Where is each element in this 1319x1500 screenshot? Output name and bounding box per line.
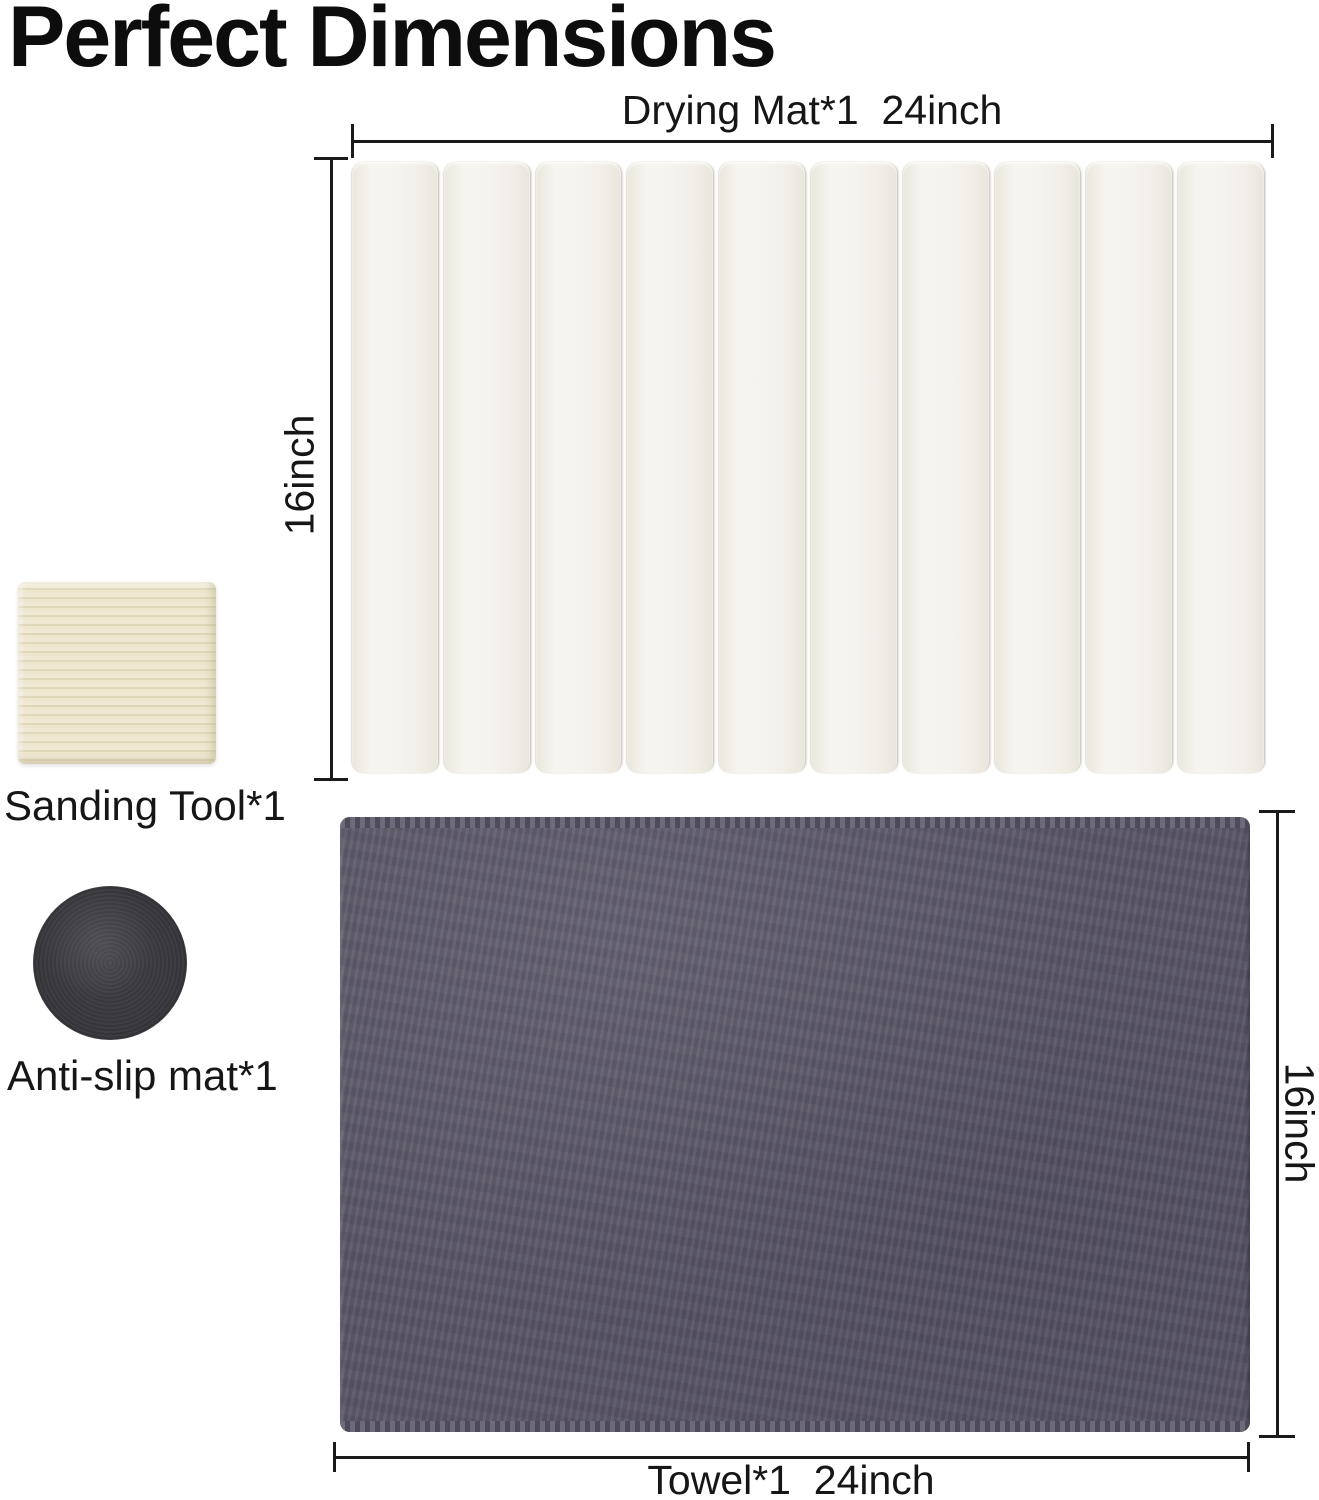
dimension-end-cap bbox=[314, 157, 348, 160]
drying-mat-slat bbox=[995, 162, 1081, 773]
drying-mat-slat bbox=[719, 162, 805, 773]
dimension-end-cap bbox=[1247, 1442, 1250, 1472]
drying-mat-image bbox=[352, 162, 1264, 773]
dimension-end-cap bbox=[314, 778, 348, 781]
dimension-end-cap bbox=[1271, 124, 1274, 158]
dimension-end-cap bbox=[1259, 810, 1295, 813]
towel-image bbox=[340, 817, 1250, 1432]
towel-width-label: Towel*1 24inch bbox=[647, 1458, 934, 1500]
drying-mat-slat bbox=[903, 162, 989, 773]
drying-mat-height-dimension-line bbox=[330, 157, 333, 781]
towel-height-dimension-line bbox=[1276, 810, 1279, 1438]
drying-mat-slat bbox=[811, 162, 897, 773]
dimension-end-cap bbox=[333, 1442, 336, 1472]
drying-mat-height-label: 16inch bbox=[277, 415, 322, 536]
dimension-end-cap bbox=[351, 124, 354, 158]
drying-mat-slat bbox=[1178, 162, 1264, 773]
sanding-tool-label: Sanding Tool*1 bbox=[4, 782, 286, 830]
anti-slip-mat-label: Anti-slip mat*1 bbox=[7, 1052, 278, 1100]
sanding-tool-image bbox=[18, 582, 216, 764]
drying-mat-slat bbox=[444, 162, 530, 773]
drying-mat-slat bbox=[1086, 162, 1172, 773]
page-title: Perfect Dimensions bbox=[8, 0, 775, 82]
dimension-end-cap bbox=[1259, 1435, 1295, 1438]
drying-mat-slat bbox=[352, 162, 438, 773]
drying-mat-slat bbox=[627, 162, 713, 773]
drying-mat-width-dimension-line bbox=[351, 140, 1274, 143]
anti-slip-mat-image bbox=[33, 886, 187, 1040]
drying-mat-slat bbox=[536, 162, 622, 773]
towel-height-label: 16inch bbox=[1276, 1063, 1319, 1184]
product-dimensions-infographic: Perfect Dimensions Drying Mat*1 24inch 1… bbox=[0, 0, 1319, 1500]
drying-mat-width-label: Drying Mat*1 24inch bbox=[622, 88, 1003, 133]
